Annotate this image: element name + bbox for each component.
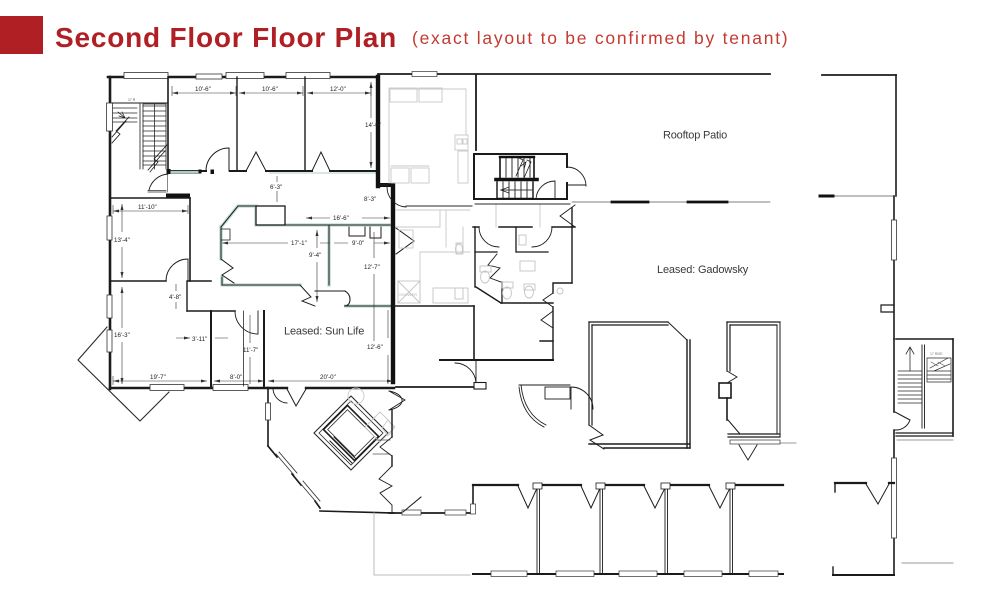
svg-text:10'-6": 10'-6" [262,86,278,93]
svg-text:12'-0": 12'-0" [330,86,346,93]
svg-text:19'-7": 19'-7" [150,374,166,381]
svg-text:16'-3": 16'-3" [114,332,130,339]
svg-text:Leased: Gadowsky: Leased: Gadowsky [657,264,749,276]
svg-text:12'-6": 12'-6" [367,344,383,351]
svg-text:6'-3": 6'-3" [270,184,282,191]
svg-text:11'-10": 11'-10" [138,204,157,211]
svg-text:17 RISE: 17 RISE [930,352,943,356]
svg-text:4'-8": 4'-8" [169,294,181,301]
svg-text:Rooftop Patio: Rooftop Patio [663,130,727,142]
svg-text:11'-7": 11'-7" [243,347,258,354]
svg-text:8'-0": 8'-0" [230,374,242,381]
svg-text:9'-4": 9'-4" [309,252,321,259]
svg-text:12'-7": 12'-7" [364,264,380,271]
svg-text:8'-3": 8'-3" [364,196,376,203]
svg-text:(exact layout to be confirmed: (exact layout to be confirmed by tenant) [412,28,789,48]
svg-text:16'-6": 16'-6" [333,215,349,222]
svg-text:10'-6": 10'-6" [195,86,211,93]
svg-text:20'-0": 20'-0" [320,374,336,381]
svg-text:SHOWER: SHOWER [399,292,417,297]
svg-text:3'-11": 3'-11" [192,336,207,343]
svg-text:14'-6": 14'-6" [365,122,381,129]
svg-text:Leased: Sun Life: Leased: Sun Life [284,326,364,338]
svg-text:17'-1": 17'-1" [291,240,307,247]
svg-text:9'-0": 9'-0" [352,240,364,247]
svg-text:17 R: 17 R [128,98,136,102]
svg-text:13'-4": 13'-4" [114,237,130,244]
svg-text:Second Floor Floor Plan: Second Floor Floor Plan [55,22,397,53]
